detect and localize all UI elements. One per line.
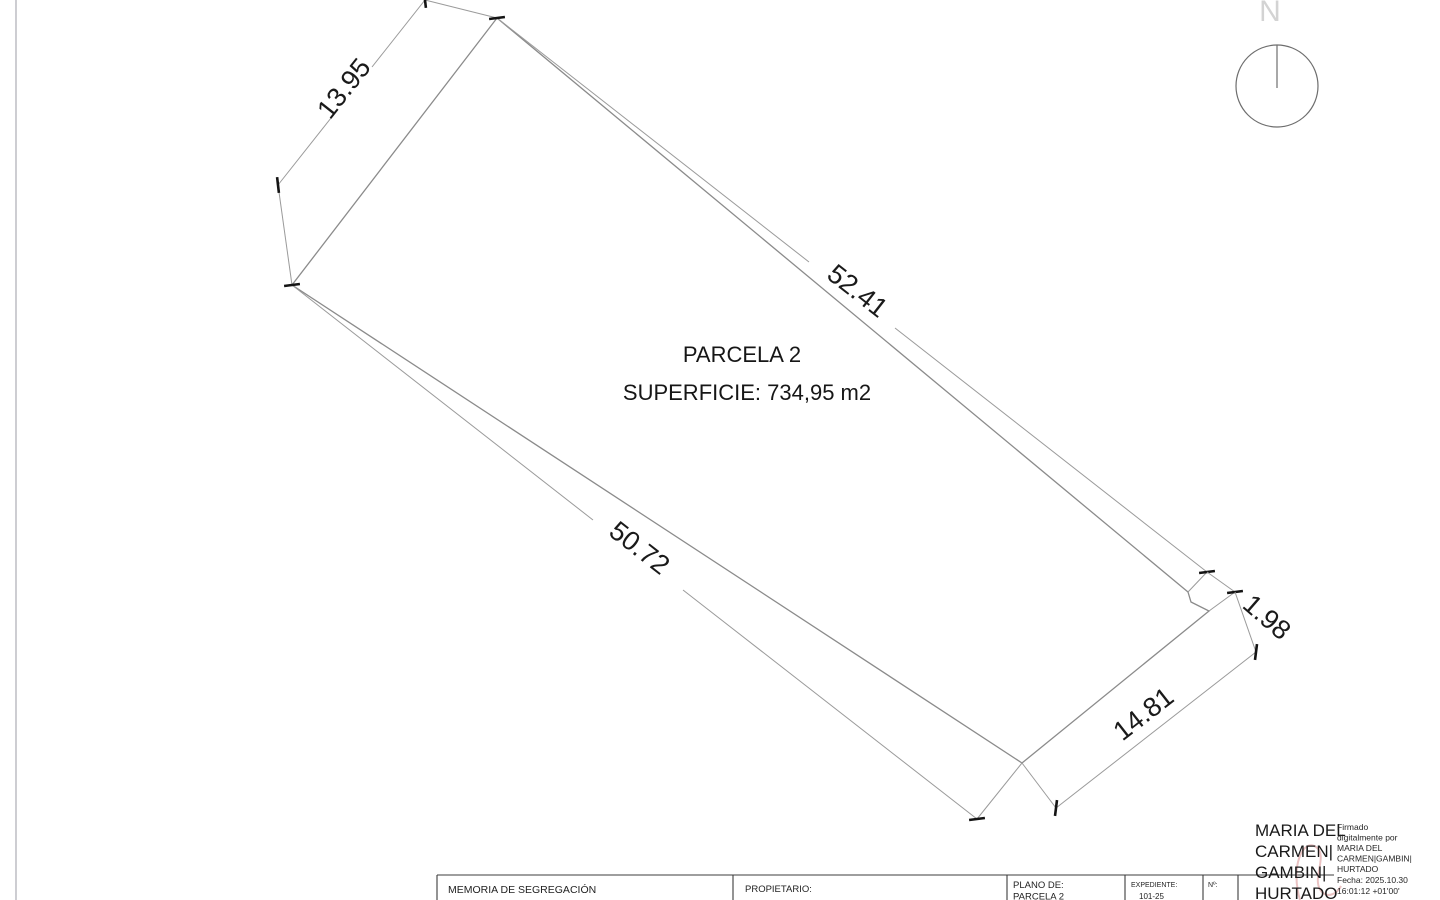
dimension-tick — [969, 818, 985, 820]
extension-line — [1188, 572, 1207, 592]
dimension-tick — [277, 177, 279, 193]
signature-detail-line: HURTADO — [1337, 864, 1379, 874]
dimension-14-81: 14.81 — [1022, 592, 1257, 816]
number-label: Nº: — [1208, 882, 1218, 889]
signature-detail-line: Firmado — [1337, 822, 1368, 832]
dimension-line — [292, 285, 593, 520]
dimension-label: 52.41 — [822, 258, 894, 323]
extension-line — [425, 0, 497, 18]
signature-detail-line: digitalmente por — [1337, 833, 1398, 843]
signature-name-line: CARMEN| — [1255, 842, 1333, 861]
dimension-line — [1056, 652, 1256, 808]
plan-sheet: 13.95 52.41 50.72 1.98 14.81 PARCELA 2 S… — [0, 0, 1440, 900]
dimension-line — [895, 328, 1207, 572]
extension-line — [1022, 763, 1056, 808]
extension-line — [977, 763, 1022, 819]
dimension-tick — [1255, 644, 1257, 660]
signature-detail-line: MARIA DEL — [1337, 843, 1383, 853]
dimension-line — [372, 0, 425, 67]
extension-line — [278, 185, 292, 285]
signature-detail-line: 16:01:12 +01'00' — [1337, 886, 1400, 896]
segregation-plan-drawing: 13.95 52.41 50.72 1.98 14.81 PARCELA 2 S… — [0, 0, 1440, 900]
dimension-tick — [489, 17, 505, 19]
dimension-1-98: 1.98 — [1207, 572, 1297, 646]
dimension-52-41: 52.41 — [489, 17, 1215, 592]
document-title: MEMORIA DE SEGREGACIÓN — [448, 883, 596, 896]
dimension-line — [1207, 572, 1235, 592]
dimension-line — [278, 118, 331, 185]
north-letter: N — [1259, 0, 1281, 28]
dimension-50-72: 50.72 — [284, 284, 1022, 820]
dimension-label: 50.72 — [604, 515, 676, 580]
dimension-tick — [1055, 800, 1057, 816]
owner-label: PROPIETARIO: — [745, 884, 812, 895]
signature-name-line: MARIA DEL — [1255, 821, 1346, 840]
signature-name-line: HURTADO — [1255, 884, 1338, 900]
dimension-label: 14.81 — [1108, 681, 1180, 746]
plan-label: PLANO DE: — [1013, 880, 1064, 891]
dimension-tick — [424, 0, 426, 8]
parcel-area-label: SUPERFICIE: 734,95 m2 — [623, 380, 871, 405]
plan-value: PARCELA 2 — [1013, 892, 1064, 900]
north-compass-icon: N — [1236, 0, 1318, 127]
extension-line — [1209, 592, 1235, 611]
title-block: MEMORIA DE SEGREGACIÓN PROPIETARIO: PLAN… — [437, 875, 1334, 900]
file-value: 101-25 — [1139, 892, 1164, 900]
file-label: EXPEDIENTE: — [1131, 882, 1177, 889]
dimension-label: 1.98 — [1237, 589, 1296, 646]
dimension-13-95: 13.95 — [277, 0, 497, 285]
signature-detail-line: CARMEN|GAMBIN| — [1337, 854, 1412, 864]
signature-name-line: GAMBIN| — [1255, 863, 1326, 882]
parcel-name-label: PARCELA 2 — [683, 342, 801, 367]
dimension-line — [497, 18, 809, 262]
dimension-label: 13.95 — [311, 53, 377, 125]
digital-signature: MARIA DEL CARMEN| GAMBIN| HURTADO Firmad… — [1255, 821, 1412, 900]
signature-detail-line: Fecha: 2025.10.30 — [1337, 875, 1408, 885]
dimension-tick — [284, 284, 300, 286]
